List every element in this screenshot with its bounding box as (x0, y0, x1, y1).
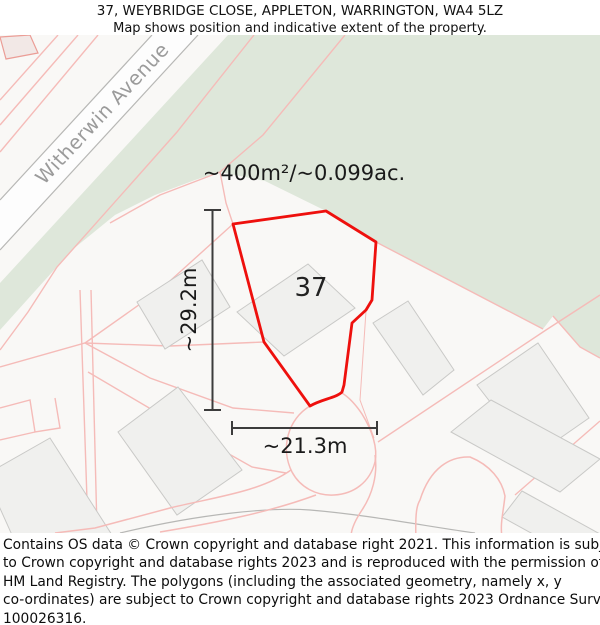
plot-number-label: 37 (294, 273, 327, 303)
copyright-notice: Contains OS data © Crown copyright and d… (0, 533, 600, 625)
page-subtitle: Map shows position and indicative extent… (0, 21, 600, 36)
map-image: Witherwin Avenue ~400m²/~0.099ac. 37 ~29… (0, 35, 600, 533)
area-label: ~400m²/~0.099ac. (203, 161, 405, 185)
page-header: 37, WEYBRIDGE CLOSE, APPLETON, WARRINGTO… (0, 0, 600, 35)
copyright-line: to Crown copyright and database rights 2… (3, 554, 600, 572)
copyright-line: 100026316. (3, 610, 600, 625)
map-canvas: Witherwin Avenue ~400m²/~0.099ac. 37 ~29… (0, 35, 600, 533)
copyright-line: HM Land Registry. The polygons (includin… (3, 573, 600, 591)
page-title: 37, WEYBRIDGE CLOSE, APPLETON, WARRINGTO… (0, 0, 600, 21)
copyright-line: Contains OS data © Crown copyright and d… (3, 536, 600, 554)
copyright-line: co-ordinates) are subject to Crown copyr… (3, 591, 600, 609)
property-map-page: 37, WEYBRIDGE CLOSE, APPLETON, WARRINGTO… (0, 0, 600, 625)
height-measure-label: ~29.2m (177, 268, 201, 353)
width-measure-label: ~21.3m (263, 434, 348, 458)
